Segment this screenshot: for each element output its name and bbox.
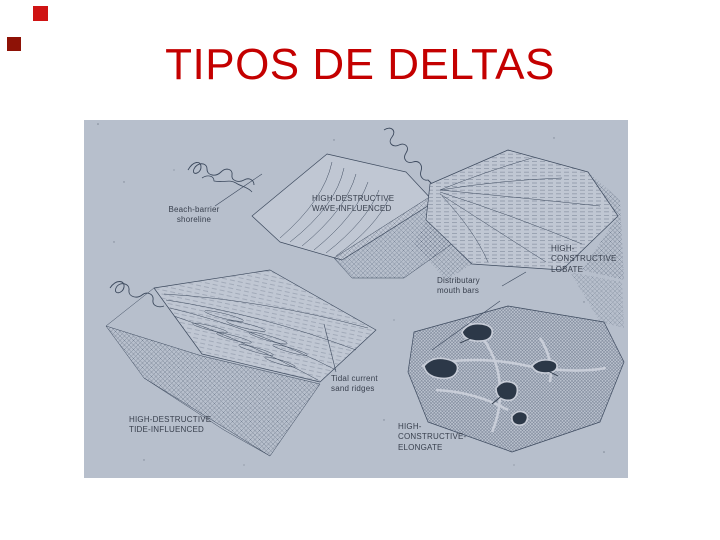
label-beach-barrier-shoreline: Beach-barrier shoreline [144, 205, 244, 226]
slide: TIPOS DE DELTAS [0, 0, 720, 540]
label-distributary-mouth-bars: Distributary mouth bars [437, 276, 480, 297]
delta-types-figure: Beach-barrier shoreline HIGH-DESTRUCTIVE… [84, 120, 628, 478]
label-high-destructive-tide-influenced: HIGH-DESTRUCTIVE TIDE-INFLUENCED [129, 415, 211, 436]
label-high-constructive-lobate: HIGH- CONSTRUCTIVE LOBATE [551, 244, 617, 275]
label-tidal-current-sand-ridges: Tidal current sand ridges [331, 374, 378, 395]
decor-square-top [33, 6, 48, 21]
slide-title: TIPOS DE DELTAS [0, 40, 720, 90]
label-high-destructive-wave-influenced: HIGH-DESTRUCTIVE WAVE-INFLUENCED [312, 194, 394, 215]
label-high-constructive-elongate: HIGH- CONSTRUCTIVE- ELONGATE [398, 422, 466, 453]
